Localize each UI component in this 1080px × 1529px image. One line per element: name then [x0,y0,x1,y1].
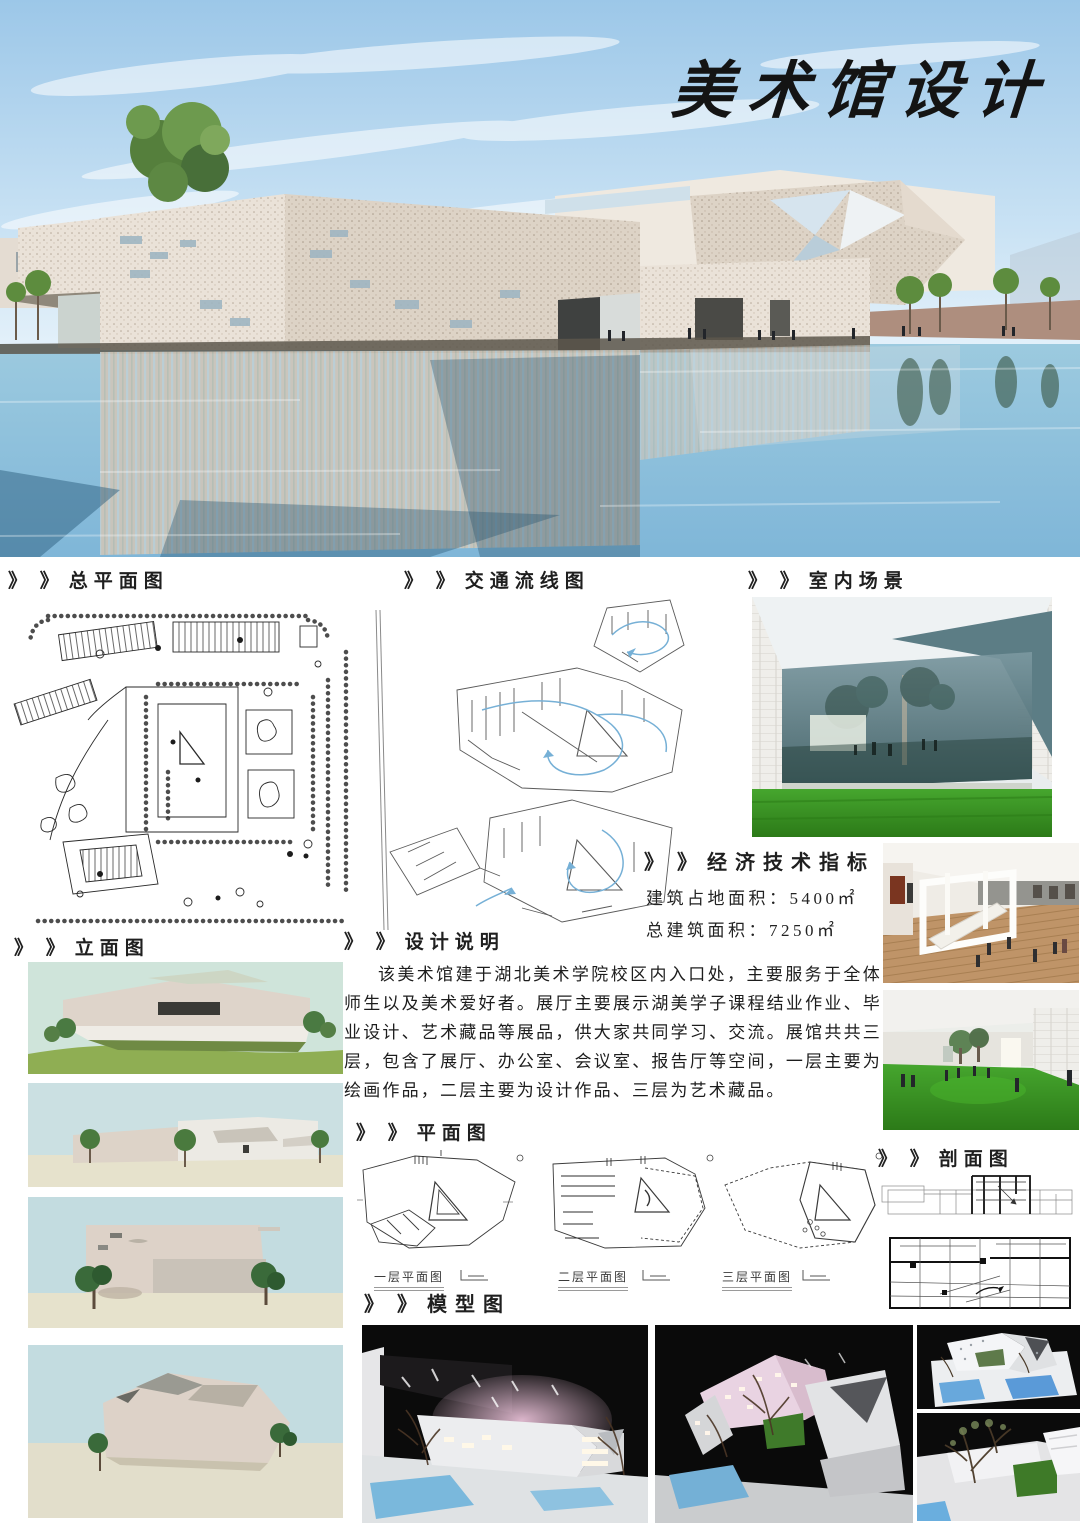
traffic-flow-drawing [372,590,688,930]
header-traffic: 》 》交通流线图 [404,566,590,593]
metric-footprint: 建筑占地面积：5400㎡ [646,884,858,909]
section-marker: 》 》 [878,1149,933,1170]
header-models: 》 》模型图 [364,1288,511,1317]
section-marker: 》 》 [14,938,69,959]
section-marker: 》 》 [644,852,701,874]
section-drawing-2 [880,1232,1080,1316]
floor-plan-3 [715,1150,883,1262]
section-marker: 》 》 [8,571,63,592]
site-plan-drawing [8,592,360,928]
gallery-interior-photo [883,843,1079,983]
header-interior: 》 》室内场景 [748,566,909,593]
header-site-plan: 》 》总平面图 [8,566,169,593]
presentation-board: 美术馆设计 》 》总平面图 》 》交通流线图 》 》室内场景 [0,0,1080,1529]
model-photo-3 [917,1325,1080,1409]
header-design-note: 》 》设计说明 [344,927,505,954]
design-note-text: 该美术馆建于湖北美术学院校区内入口处，主要服务于全体师生以及美术爱好者。展厅主要… [344,960,882,1105]
section-drawing-1 [880,1170,1080,1224]
floor-plan-2 [545,1150,715,1262]
elevation-photo-4 [28,1345,343,1518]
model-photo-1 [362,1325,648,1523]
section-marker: 》 》 [404,571,459,592]
elevation-photo-2 [28,1083,343,1187]
header-elevation: 》 》立面图 [14,933,150,960]
section-marker: 》 》 [364,1294,421,1316]
section-marker: 》 》 [748,571,803,592]
elevation-photo-3 [28,1197,343,1328]
model-photo-2 [655,1325,913,1523]
plan-caption-3: 三层平面图 [722,1268,792,1291]
section-marker: 》 》 [344,932,399,953]
elevation-photo-1 [28,962,343,1074]
header-sections: 》 》剖面图 [878,1144,1014,1171]
poster-title: 美术馆设计 [669,40,1055,130]
scale-bar-1 [458,1268,494,1284]
scale-bar-2 [640,1268,676,1284]
floor-plan-1 [353,1150,531,1262]
plan-caption-2: 二层平面图 [558,1268,628,1291]
header-metrics: 》 》经济技术指标 [644,846,875,875]
header-plans: 》 》平面图 [356,1118,492,1145]
interior-scene-photo [752,597,1052,837]
scale-bar-3 [800,1268,836,1284]
section-marker: 》 》 [356,1123,411,1144]
metric-total-area: 总建筑面积：7250㎡ [646,916,838,941]
model-photo-4 [917,1413,1080,1521]
courtyard-interior-photo [883,990,1079,1130]
